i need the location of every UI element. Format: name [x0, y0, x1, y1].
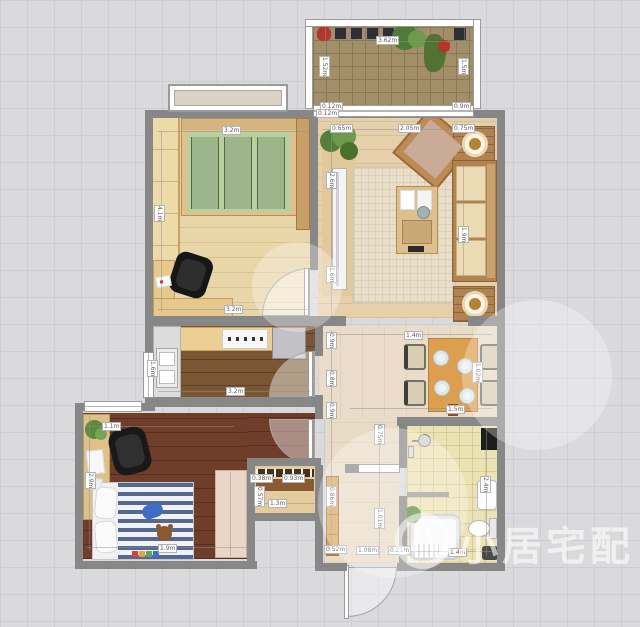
dimension-line [331, 129, 332, 319]
dim-label: 0.93m [282, 474, 305, 483]
shower-head[interactable] [418, 434, 431, 447]
dim-label: 1.4m [448, 548, 467, 557]
sofa-back [487, 164, 495, 278]
dim-label: 0.9m [326, 332, 337, 349]
plate [433, 350, 449, 366]
dim-label: 1.9m [158, 544, 177, 553]
dim-label: 0.57m [254, 486, 265, 507]
wall [315, 326, 323, 356]
dim-label: 2.6m [326, 172, 337, 189]
shower-valve [408, 446, 414, 458]
dim-label: 0.9m [326, 402, 337, 419]
dim-label: 1.08m [356, 546, 379, 555]
bedside-cabinet[interactable] [296, 118, 310, 230]
wardrobe-door-line [230, 472, 231, 556]
wall [145, 316, 318, 326]
wall [468, 316, 505, 326]
flower-pot[interactable] [317, 27, 331, 41]
wall [399, 426, 407, 468]
dim-label: 2.4m [480, 476, 491, 493]
dining-chair[interactable] [404, 344, 426, 370]
floor-plan: 3.62m 1.52m 1.5m 0.12m 0.9m 3.2m 4.1m 3.… [0, 0, 640, 627]
stove-knobs [228, 337, 264, 341]
teddy-bear-ear [168, 524, 173, 529]
dim-label: 3.62m [376, 36, 399, 45]
toy-block [146, 551, 152, 557]
wall [247, 513, 321, 521]
planter-box[interactable] [351, 28, 362, 39]
bed-quilt-panel [191, 137, 219, 209]
wall [145, 397, 323, 407]
balcony-window-right[interactable] [473, 19, 481, 109]
dim-label: 2.9m [85, 472, 96, 489]
dimension-line [379, 426, 380, 558]
desk[interactable] [153, 298, 233, 318]
dim-label: 1.52m [319, 56, 330, 77]
wall [318, 316, 346, 326]
dimension-line [350, 408, 492, 409]
dim-label: 2.05m [398, 124, 421, 133]
pillow [94, 520, 119, 554]
dim-label: 4.1m [154, 205, 165, 222]
dim-label: 1.02m [472, 362, 483, 383]
bed-quilt-panel [257, 137, 285, 209]
wall [497, 110, 505, 571]
food-plate [462, 131, 488, 157]
dim-label: 0.65m [330, 124, 353, 133]
sink-basin [159, 352, 175, 366]
teapot [417, 206, 430, 219]
dimension-line [331, 330, 332, 556]
dim-label: 1.6m [147, 360, 158, 377]
dim-label: 1.6m [326, 266, 337, 283]
shower-arm [412, 440, 419, 442]
plant[interactable] [340, 142, 358, 160]
balcony-window-top[interactable] [305, 19, 481, 27]
dim-label: 0.75m [374, 424, 385, 445]
wardrobe[interactable] [153, 118, 180, 278]
dim-label: 0.21m [388, 546, 411, 555]
dim-label: 0.9m [452, 102, 471, 111]
dim-label: 1.5m [446, 405, 465, 414]
wall [75, 403, 83, 569]
dim-label: 3.2m [224, 305, 243, 314]
dim-label: 0.12m [316, 109, 339, 118]
dim-label: 0.8m [326, 370, 337, 387]
remote [408, 246, 424, 252]
sofa-cushion [456, 166, 486, 201]
bay-window-sill [174, 90, 282, 106]
food-plate [462, 291, 488, 317]
book [400, 190, 415, 210]
plate [459, 388, 475, 404]
dim-label: 0.52m [324, 545, 347, 554]
wall [397, 417, 505, 426]
sink-basin [159, 370, 175, 384]
sofa-cushion [456, 240, 486, 276]
wall [345, 464, 359, 473]
teddy-bear-ear [156, 524, 161, 529]
dining-chair[interactable] [404, 380, 426, 406]
dim-label: 1.1m [102, 422, 121, 431]
dim-label: 0.75m [452, 124, 475, 133]
dim-label: 1.3m [268, 499, 287, 508]
plate [457, 358, 473, 374]
floor-drain [482, 546, 498, 560]
dim-label: 0.38m [250, 474, 273, 483]
food [469, 298, 481, 310]
dimension-line [463, 165, 464, 279]
entry-door[interactable] [344, 565, 349, 619]
tray [402, 220, 432, 244]
dim-label: 0.86m [326, 486, 337, 507]
toilet-tank [489, 518, 497, 539]
food [469, 138, 481, 150]
dim-label: 1.9m [458, 226, 469, 243]
dim-label: 3.2m [226, 387, 245, 396]
toy-block [139, 551, 145, 557]
washing-machine[interactable] [481, 428, 498, 450]
dim-label: 1.5m [458, 58, 469, 75]
plate [434, 380, 450, 396]
wall [247, 458, 321, 466]
dim-label: 1.01m [374, 508, 385, 529]
wardrobe[interactable] [215, 470, 247, 558]
wall [315, 395, 323, 419]
wall [310, 110, 318, 270]
balcony-window-left[interactable] [305, 19, 313, 109]
entry-door-arc[interactable] [347, 567, 397, 617]
wall [397, 563, 505, 571]
dim-label: 1.4m [404, 331, 423, 340]
dim-label: 3.2m [222, 126, 241, 135]
bedroom2-window[interactable] [84, 401, 142, 412]
bed-quilt-panel [224, 137, 252, 209]
planter-box[interactable] [335, 28, 346, 39]
wall [75, 561, 257, 569]
toy-block [132, 551, 138, 557]
pillow [94, 486, 119, 520]
shower-partition [407, 492, 449, 497]
